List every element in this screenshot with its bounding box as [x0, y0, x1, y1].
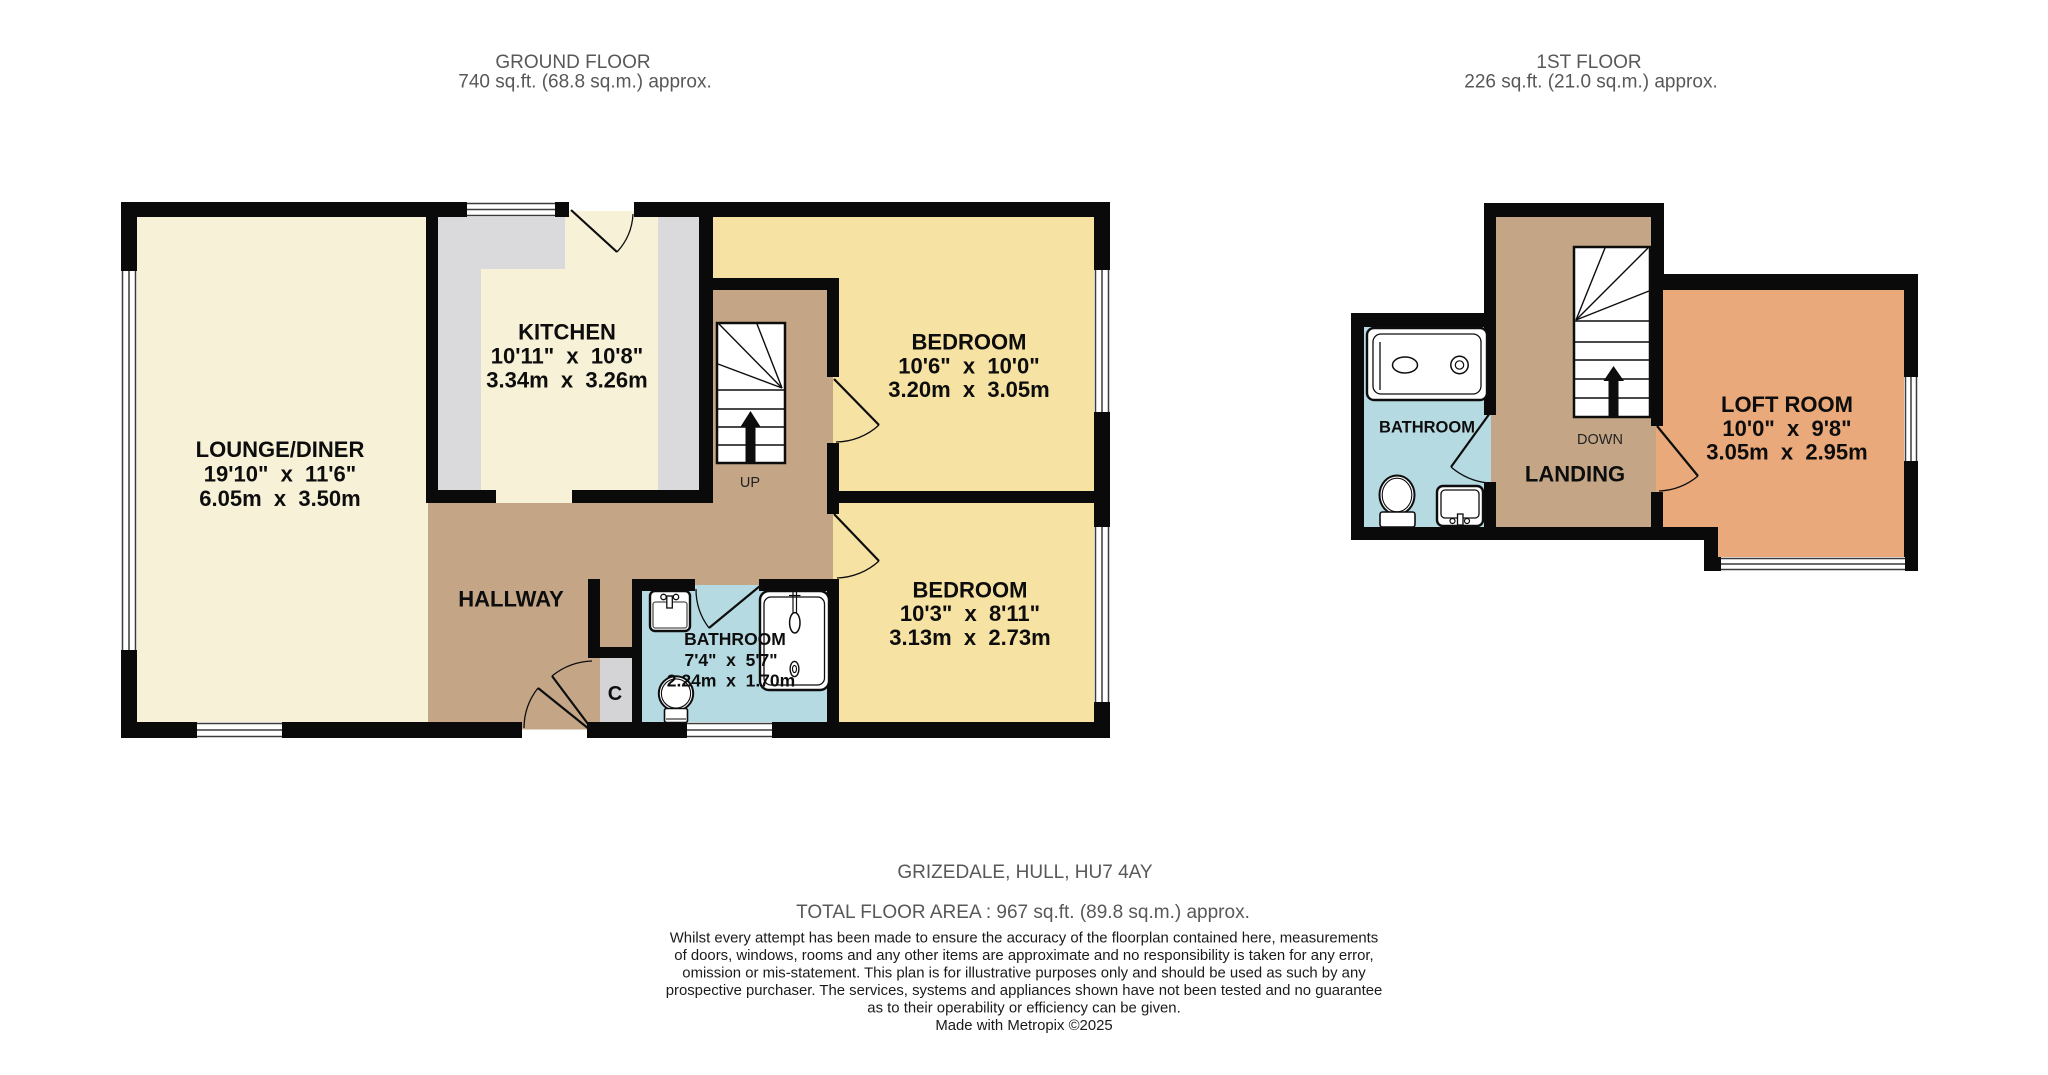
- svg-text:C: C: [608, 683, 622, 705]
- svg-text:LOFT ROOM: LOFT ROOM: [1721, 392, 1853, 417]
- svg-text:10'0" x 9'8": 10'0" x 9'8": [1722, 416, 1851, 441]
- svg-text:2.24m x 1.70m: 2.24m x 1.70m: [667, 671, 795, 691]
- svg-text:6.05m x 3.50m: 6.05m x 3.50m: [199, 486, 360, 511]
- svg-text:omission or mis-statement. Thi: omission or mis-statement. This plan is …: [682, 966, 1366, 982]
- svg-text:3.34m x 3.26m: 3.34m x 3.26m: [486, 368, 647, 393]
- svg-text:Made with Metropix ©2025: Made with Metropix ©2025: [935, 1018, 1112, 1034]
- svg-text:prospective purchaser. The ser: prospective purchaser. The services, sys…: [666, 983, 1383, 999]
- svg-text:TOTAL FLOOR AREA : 967 sq.ft.: TOTAL FLOOR AREA : 967 sq.ft. (89.8 sq.m…: [796, 902, 1250, 923]
- svg-text:BEDROOM: BEDROOM: [912, 330, 1027, 355]
- svg-text:3.13m x 2.73m: 3.13m x 2.73m: [889, 625, 1050, 650]
- svg-text:19'10" x 11'6": 19'10" x 11'6": [204, 462, 356, 487]
- svg-text:10'6" x 10'0": 10'6" x 10'0": [898, 354, 1039, 379]
- svg-text:740 sq.ft. (68.8 sq.m.) approx: 740 sq.ft. (68.8 sq.m.) approx.: [458, 72, 711, 93]
- svg-text:GROUND FLOOR: GROUND FLOOR: [495, 52, 650, 73]
- svg-text:3.20m x 3.05m: 3.20m x 3.05m: [888, 377, 1049, 402]
- svg-text:7'4" x 5'7": 7'4" x 5'7": [684, 650, 777, 670]
- svg-text:226 sq.ft. (21.0 sq.m.) approx: 226 sq.ft. (21.0 sq.m.) approx.: [1464, 72, 1717, 93]
- svg-text:of doors, windows, rooms and a: of doors, windows, rooms and any other i…: [674, 948, 1373, 964]
- svg-text:BATHROOM: BATHROOM: [1379, 419, 1475, 437]
- svg-text:as to their operability or eff: as to their operability or efficiency ca…: [867, 1001, 1180, 1017]
- svg-text:LOUNGE/DINER: LOUNGE/DINER: [196, 437, 365, 462]
- svg-text:1ST FLOOR: 1ST FLOOR: [1536, 52, 1641, 73]
- svg-text:HALLWAY: HALLWAY: [458, 587, 564, 612]
- svg-text:GRIZEDALE, HULL, HU7 4AY: GRIZEDALE, HULL, HU7 4AY: [897, 862, 1153, 883]
- svg-text:3.05m x 2.95m: 3.05m x 2.95m: [1706, 440, 1867, 465]
- svg-text:DOWN: DOWN: [1577, 432, 1623, 448]
- svg-text:10'11" x 10'8": 10'11" x 10'8": [491, 344, 643, 369]
- svg-text:UP: UP: [740, 475, 760, 491]
- svg-text:BEDROOM: BEDROOM: [913, 578, 1028, 603]
- svg-text:KITCHEN: KITCHEN: [518, 320, 616, 345]
- svg-text:BATHROOM: BATHROOM: [684, 629, 786, 649]
- svg-text:10'3" x 8'11": 10'3" x 8'11": [900, 601, 1040, 626]
- svg-text:LANDING: LANDING: [1525, 462, 1625, 487]
- svg-text:Whilst every attempt has been: Whilst every attempt has been made to en…: [670, 931, 1379, 947]
